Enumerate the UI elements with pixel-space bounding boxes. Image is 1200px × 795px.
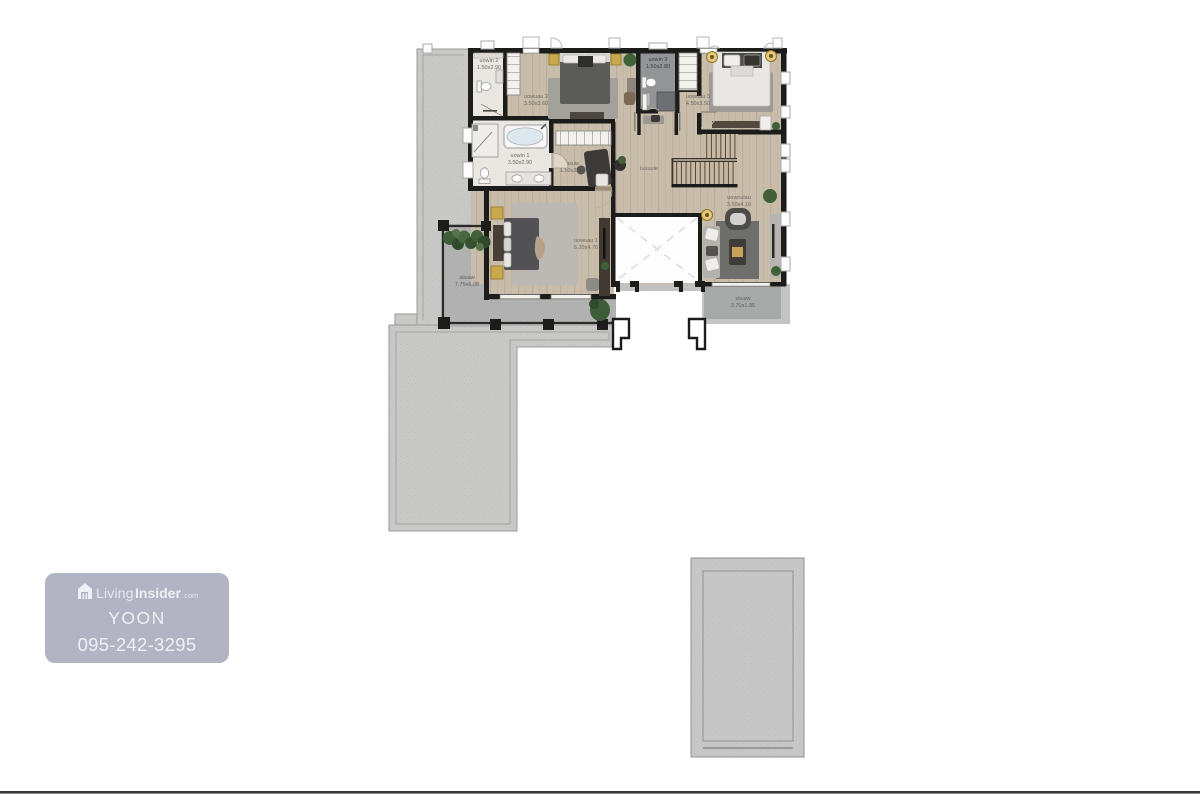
svg-text:3.50x3.60: 3.50x3.60 — [524, 101, 548, 107]
svg-text:uowuau 3: uowuau 3 — [686, 94, 710, 100]
svg-text:siiuaw: siiuaw — [735, 296, 750, 302]
svg-text:uowuau 2: uowuau 2 — [524, 94, 548, 100]
svg-text:luuuule: luuuule — [640, 166, 658, 172]
svg-text:5.20x4.70: 5.20x4.70 — [574, 245, 598, 251]
svg-text:3.50x2.90: 3.50x2.90 — [508, 160, 532, 166]
svg-text:1.50x2.80: 1.50x2.80 — [646, 64, 670, 70]
svg-text:3.50x4.10: 3.50x4.10 — [727, 202, 751, 208]
svg-text:4.50x3.50: 4.50x3.50 — [686, 101, 710, 107]
svg-text:3.70x1.85: 3.70x1.85 — [731, 303, 755, 309]
svg-text:uowin 1: uowin 1 — [511, 153, 530, 159]
svg-text:uowuau 1: uowuau 1 — [574, 238, 598, 244]
svg-text:YOON: YOON — [108, 608, 166, 628]
svg-text:uowin 2: uowin 2 — [480, 58, 499, 64]
svg-text:Living: Living — [96, 585, 134, 601]
svg-text:7.75x6.08: 7.75x6.08 — [455, 282, 479, 288]
svg-text:095-242-3295: 095-242-3295 — [78, 634, 197, 655]
svg-text:Insider: Insider — [135, 585, 181, 601]
svg-text:uownulau: uownulau — [727, 195, 751, 201]
svg-text:siiuaw: siiuaw — [459, 275, 474, 281]
svg-text:.com: .com — [182, 591, 198, 600]
svg-text:uowin 3: uowin 3 — [649, 57, 668, 63]
